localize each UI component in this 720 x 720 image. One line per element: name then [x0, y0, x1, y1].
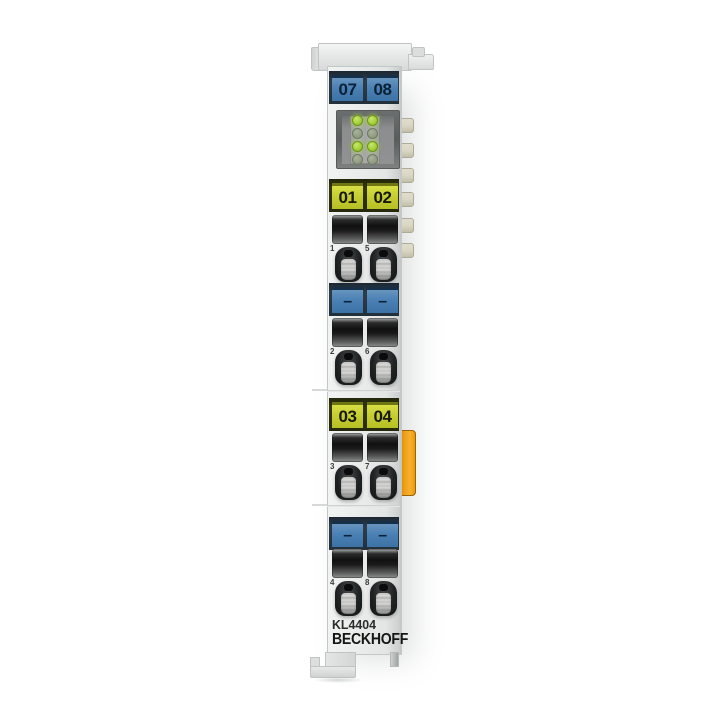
- terminal-number: 2: [330, 347, 334, 356]
- terminal-number: 6: [365, 347, 369, 356]
- terminal-number: 7: [365, 462, 369, 471]
- wire-clamp-contact: [335, 581, 362, 616]
- channel-label-03: 03: [332, 402, 363, 428]
- led-indicator: [352, 128, 363, 139]
- wire-clamp-contact: [370, 350, 397, 385]
- screwdriver-slot: [367, 549, 398, 578]
- bottom-right-leg: [390, 652, 399, 667]
- screwdriver-slot: [332, 549, 363, 578]
- led-indicator: [367, 141, 378, 152]
- screwdriver-slot: [332, 318, 363, 347]
- led-indicator: [352, 141, 363, 152]
- terminal-number: 3: [330, 462, 334, 471]
- channel-label-01: 01: [332, 183, 363, 209]
- wire-clamp-contact: [370, 247, 397, 282]
- minus-label: –: [332, 287, 363, 313]
- channel-label-07: 07: [332, 75, 363, 101]
- terminal-number: 8: [365, 578, 369, 587]
- housing-seam: [327, 390, 400, 392]
- top-cap-bump: [412, 47, 425, 57]
- housing-seam-tick: [312, 504, 327, 506]
- brand-logo: BECKHOFF: [332, 631, 408, 649]
- housing-seam-tick: [312, 389, 327, 391]
- led-indicator: [367, 154, 378, 165]
- label-strip-03-04: 03 04: [329, 398, 399, 431]
- screwdriver-slot: [367, 318, 398, 347]
- product-photo-bus-terminal: 07 08 01 02 1 5 – – 2 6: [0, 0, 720, 720]
- minus-label: –: [367, 287, 398, 313]
- minus-label: –: [367, 521, 398, 547]
- led-indicator: [352, 154, 363, 165]
- led-indicator: [367, 128, 378, 139]
- terminal-number: 1: [330, 244, 334, 253]
- terminal-number: 5: [365, 244, 369, 253]
- minus-label: –: [332, 521, 363, 547]
- housing-seam: [327, 505, 400, 507]
- label-strip-minus-lower: – –: [329, 517, 399, 550]
- wire-clamp-contact: [370, 465, 397, 500]
- led-diagnostic-window: [336, 110, 400, 169]
- wire-clamp-contact: [335, 350, 362, 385]
- model-number: KL4404: [332, 617, 376, 632]
- screwdriver-slot: [367, 433, 398, 462]
- channel-label-04: 04: [367, 402, 398, 428]
- screwdriver-slot: [332, 215, 363, 244]
- terminal-row-3: 3 7: [327, 433, 400, 503]
- wire-clamp-contact: [335, 465, 362, 500]
- led-indicator: [352, 115, 363, 126]
- label-strip-07-08: 07 08: [329, 71, 399, 104]
- label-strip-01-02: 01 02: [329, 179, 399, 212]
- wire-clamp-contact: [335, 247, 362, 282]
- terminal-row-2: 2 6: [327, 318, 400, 388]
- channel-label-02: 02: [367, 183, 398, 209]
- label-strip-minus-upper: – –: [329, 283, 399, 316]
- channel-label-08: 08: [367, 75, 398, 101]
- led-indicator: [367, 115, 378, 126]
- screwdriver-slot: [332, 433, 363, 462]
- screwdriver-slot: [367, 215, 398, 244]
- terminal-number: 4: [330, 578, 334, 587]
- terminal-row-1: 1 5: [327, 215, 400, 285]
- foot-shadow: [312, 677, 364, 683]
- terminal-row-4: 4 8: [327, 549, 400, 619]
- wire-clamp-contact: [370, 581, 397, 616]
